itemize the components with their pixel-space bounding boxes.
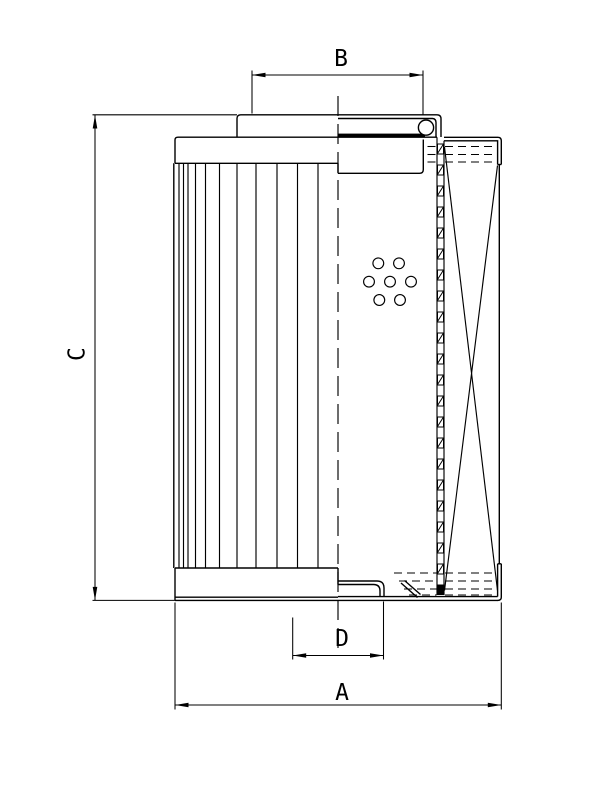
flange-left-profile: [175, 137, 437, 163]
hatch-boxes: [437, 144, 444, 596]
dim-d-arrow-left: [293, 653, 307, 658]
hole: [374, 295, 385, 306]
hole: [406, 276, 417, 287]
o-ring: [418, 120, 433, 135]
spigot-inner-wall: [338, 585, 380, 598]
top-end-cap: [237, 115, 441, 137]
hole: [395, 295, 406, 306]
hole: [394, 258, 405, 269]
dim-b-arrow-right: [410, 73, 424, 78]
hole: [385, 276, 396, 287]
dim-b-arrow-left: [252, 73, 266, 78]
hole: [364, 276, 375, 287]
filter-element-drawing: C B D A: [0, 0, 612, 792]
dimension-c: C: [65, 115, 238, 601]
dimension-label-b: B: [334, 46, 348, 72]
cap-seam-thick-line: [338, 134, 425, 137]
pleated-media: [174, 163, 318, 568]
dimension-label-d: D: [335, 626, 349, 652]
drawing-page: C B D A: [0, 0, 612, 792]
hole: [373, 258, 384, 269]
dim-c-arrow-up: [93, 115, 98, 129]
spigot-outer-wall: [338, 581, 384, 597]
cross-brace: [445, 147, 498, 591]
dim-a-arrow-left: [175, 703, 189, 708]
flange-skirt: [338, 140, 423, 174]
perforation-holes: [364, 258, 417, 306]
dim-a-arrow-right: [488, 703, 502, 708]
strip-bottom-solid-block: [437, 585, 444, 596]
dimension-label-c: C: [65, 347, 91, 361]
dim-c-arrow-down: [93, 587, 98, 601]
inner-tube-hatched-wall: [437, 137, 444, 595]
shell-bottom-rim-outer-wall: [498, 564, 502, 601]
bottom-end-cap: [175, 568, 338, 600]
dim-d-arrow-right: [370, 653, 384, 658]
bottom-spigot: [338, 568, 384, 597]
top-flange: [175, 137, 437, 173]
dimension-label-a: A: [335, 680, 349, 706]
shell-top-rim-inner: [444, 141, 498, 165]
